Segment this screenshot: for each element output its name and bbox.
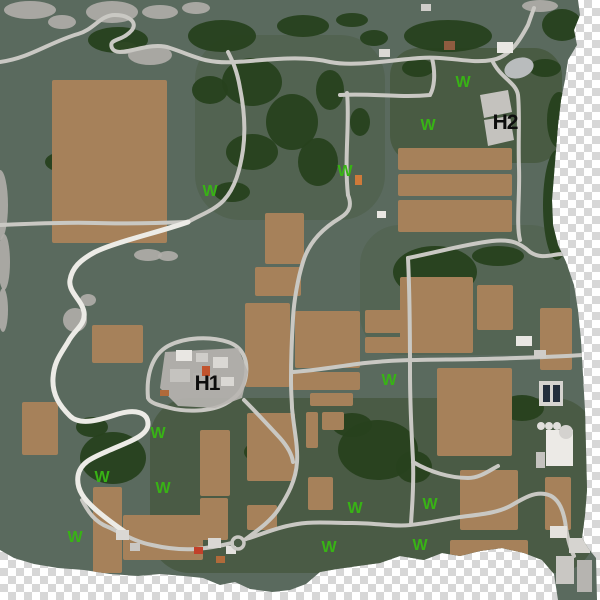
terrain-layers <box>0 0 595 592</box>
crop-field <box>295 311 360 368</box>
crop-field <box>200 430 230 496</box>
crop-field <box>437 368 512 456</box>
building <box>569 538 590 553</box>
building <box>577 560 592 592</box>
forest-patch <box>547 92 571 148</box>
crop-field <box>292 372 360 390</box>
forest-patch <box>226 134 278 170</box>
w-marker: W <box>94 469 110 486</box>
w-marker: W <box>347 500 363 517</box>
crop-field <box>398 174 512 196</box>
farm-map-canvas: WWWWWWWWWWWWWH1H2 <box>0 0 600 600</box>
crop-field <box>92 325 143 363</box>
w-marker: W <box>420 117 436 134</box>
building <box>444 41 455 50</box>
building <box>534 350 546 358</box>
building <box>216 556 225 563</box>
forest-patch <box>543 150 571 260</box>
crop-field <box>265 213 304 264</box>
map-preview-image: WWWWWWWWWWWWWH1H2 <box>0 0 600 600</box>
rock-patch <box>142 5 178 19</box>
crop-field <box>322 412 344 430</box>
w-marker: W <box>67 529 83 546</box>
crop-field <box>398 148 512 170</box>
rock-patch <box>522 0 558 12</box>
forest-patch <box>402 59 434 77</box>
hotspot-label: H1 <box>195 372 221 395</box>
building <box>379 49 390 57</box>
building <box>553 385 560 402</box>
forest-patch <box>472 246 524 266</box>
building <box>176 350 192 361</box>
building <box>170 369 190 382</box>
building <box>497 42 513 53</box>
crop-field <box>398 200 512 232</box>
building <box>116 530 129 540</box>
w-marker: W <box>321 539 337 556</box>
crop-field <box>306 412 318 448</box>
building <box>556 556 574 584</box>
forest-patch <box>350 108 370 136</box>
crop-field <box>477 285 513 330</box>
building <box>355 175 362 185</box>
crop-field <box>245 303 290 387</box>
w-marker: W <box>150 425 166 442</box>
forest-patch <box>456 554 492 568</box>
forest-patch <box>298 138 338 186</box>
crop-field <box>308 477 333 510</box>
w-marker: W <box>337 163 353 180</box>
silo <box>559 425 573 439</box>
hotspot-label: H2 <box>493 111 518 134</box>
forest-patch <box>529 59 561 77</box>
crop-field <box>22 402 58 455</box>
building <box>221 377 234 386</box>
crop-field <box>52 80 167 243</box>
building <box>208 538 221 548</box>
building <box>550 526 567 538</box>
building <box>196 353 208 362</box>
rock-patch <box>182 2 210 14</box>
forest-patch <box>222 58 282 106</box>
w-marker: W <box>202 183 218 200</box>
forest-patch <box>277 15 329 37</box>
building <box>516 336 532 346</box>
rock-patch <box>4 1 56 19</box>
building <box>194 547 203 554</box>
w-marker: W <box>455 74 471 91</box>
rock-patch <box>134 249 162 261</box>
silo <box>545 422 553 430</box>
building <box>130 543 140 551</box>
crop-field <box>450 540 528 564</box>
building <box>213 357 228 368</box>
crop-field <box>540 308 572 370</box>
crop-field <box>310 393 353 406</box>
building <box>543 385 550 402</box>
silo <box>537 422 545 430</box>
forest-patch <box>316 70 344 110</box>
building <box>536 452 545 468</box>
forest-patch <box>360 30 388 46</box>
building <box>421 4 431 11</box>
w-marker: W <box>381 372 397 389</box>
forest-patch <box>336 13 368 27</box>
crop-field <box>200 498 228 540</box>
building <box>377 211 386 218</box>
rock-patch <box>48 15 76 29</box>
forest-patch <box>188 20 256 52</box>
road <box>0 222 188 225</box>
building <box>160 390 169 396</box>
w-marker: W <box>422 496 438 513</box>
w-marker: W <box>412 537 428 554</box>
rock-patch <box>158 251 178 261</box>
forest-patch <box>542 9 582 41</box>
w-marker: W <box>155 480 171 497</box>
